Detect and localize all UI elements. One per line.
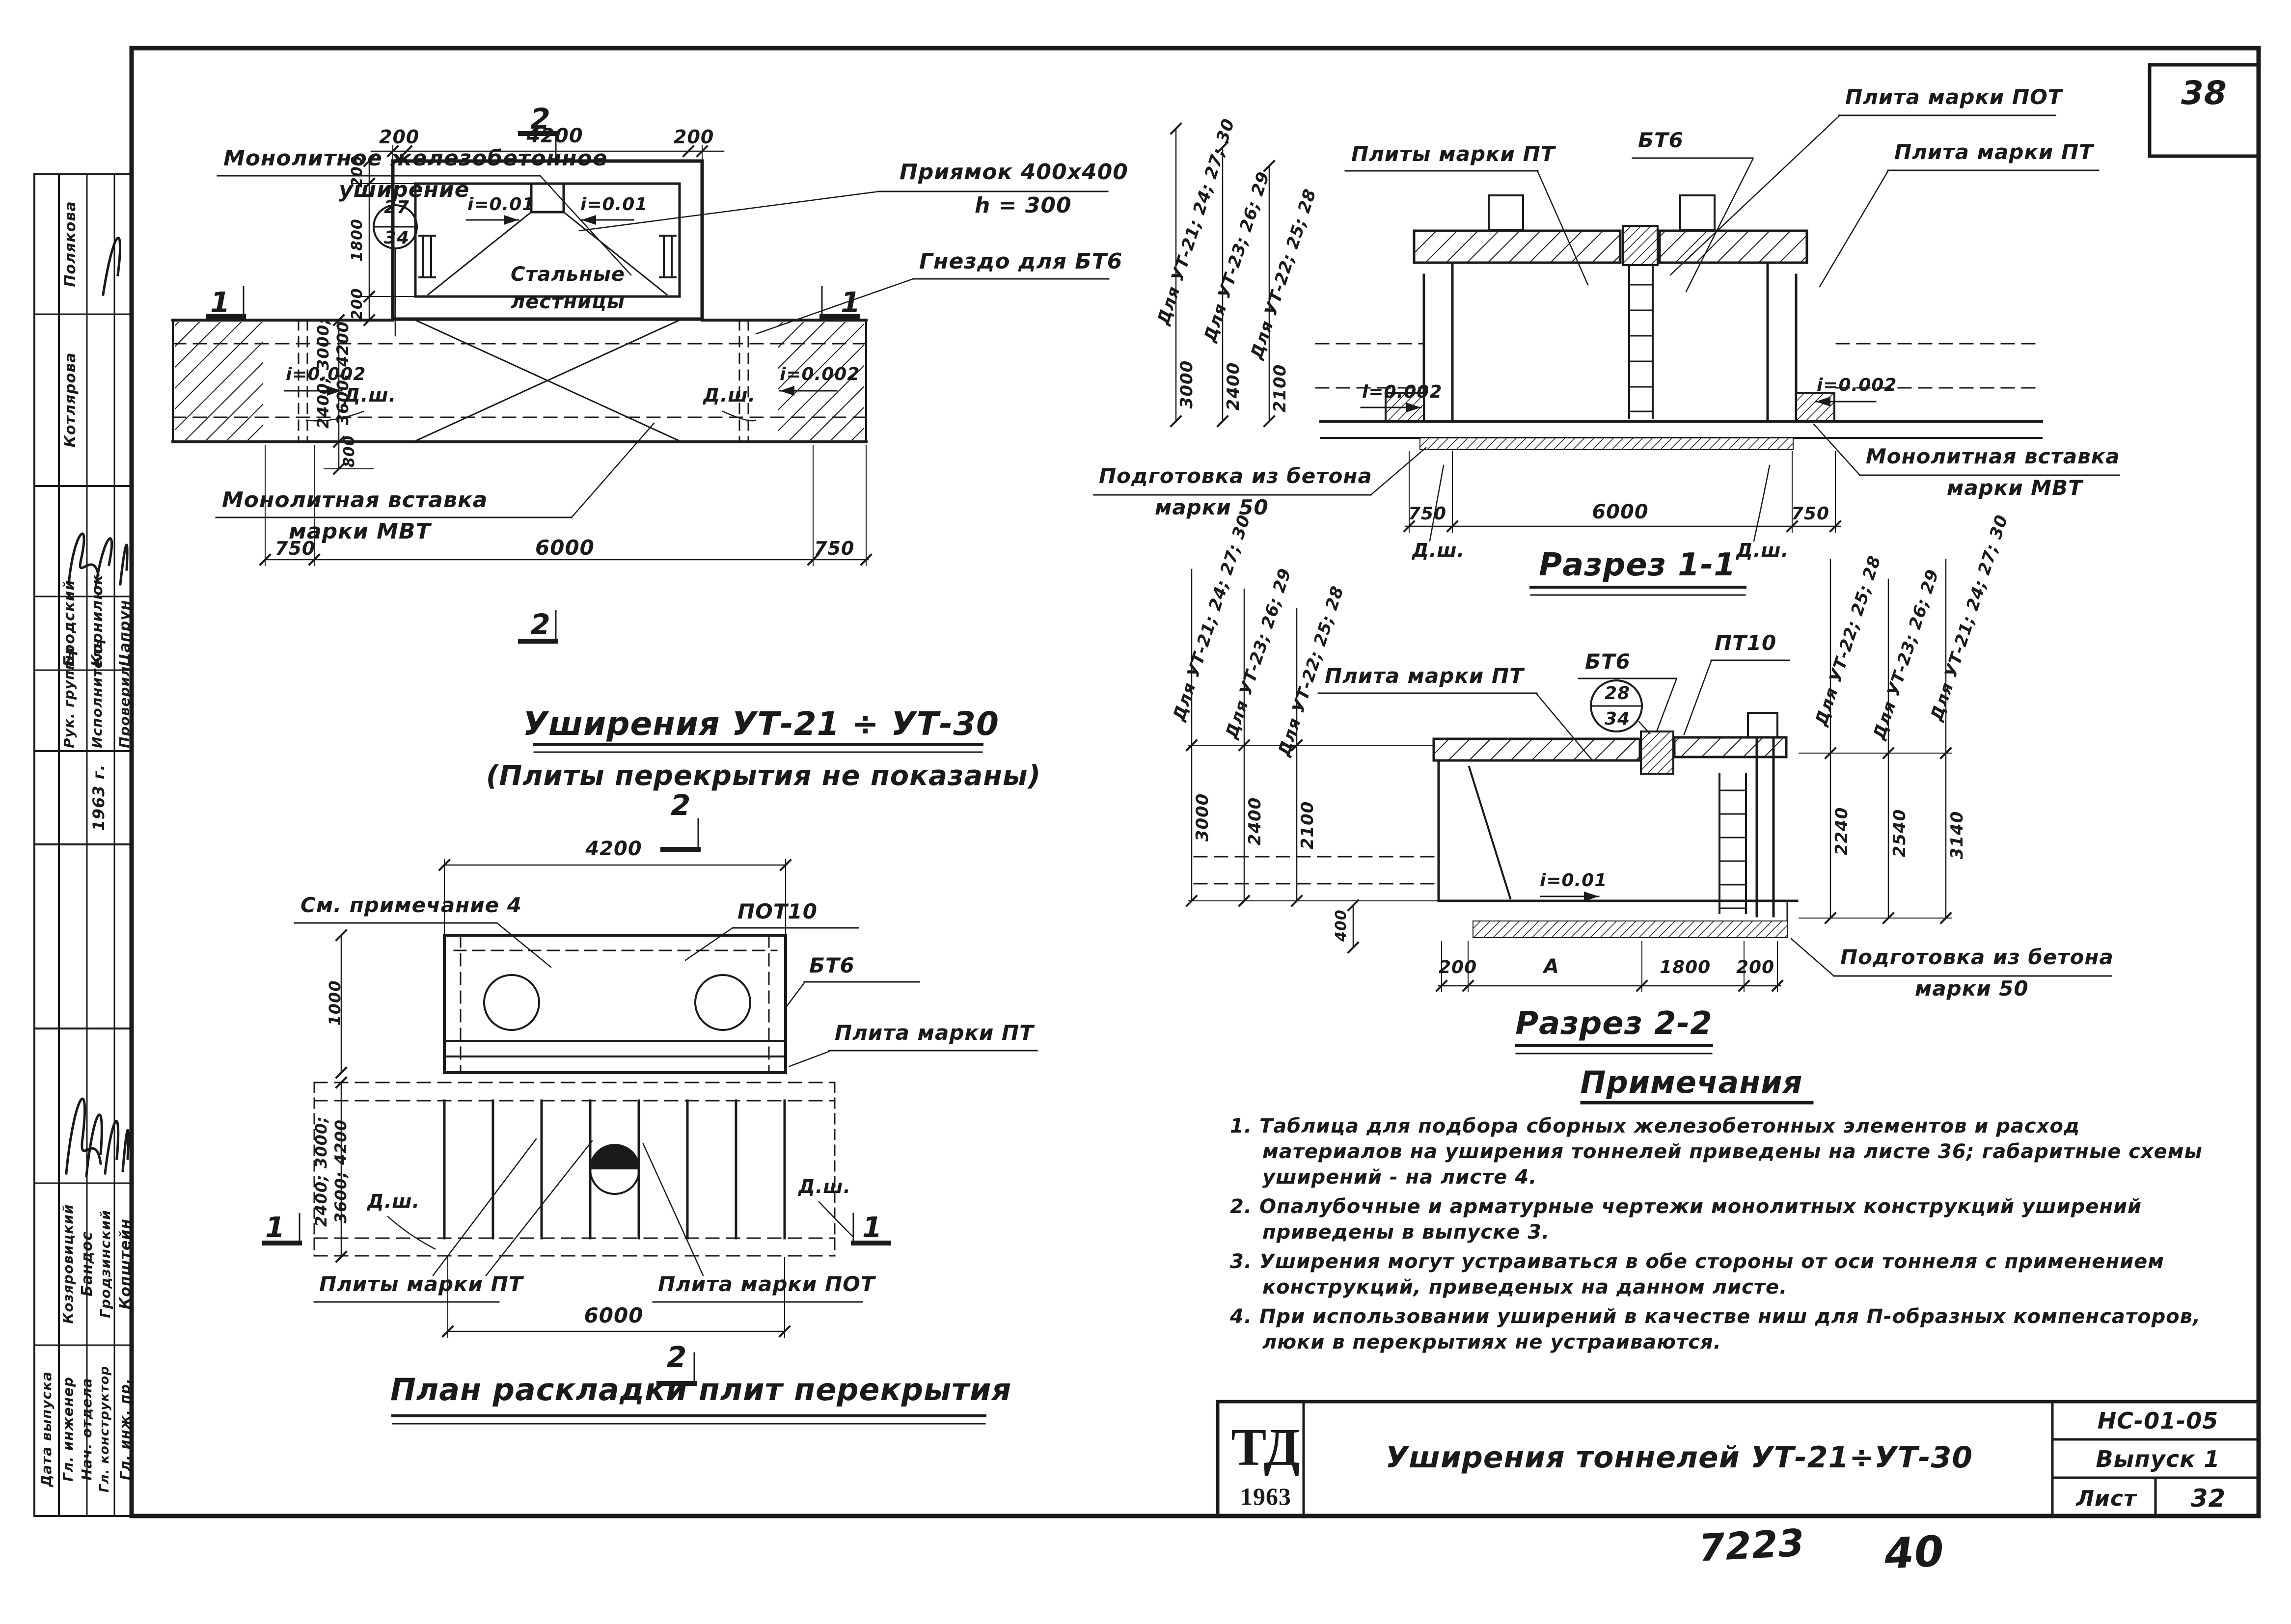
- sidebar-date-label: Дата выпуска: [39, 1349, 54, 1510]
- d2-joint-left: Д.ш.: [367, 1192, 420, 1212]
- d4-slope-001: i=0.01: [1540, 871, 1607, 890]
- titleblock-sheet-label: Лист: [2060, 1488, 2153, 1510]
- d3-label-insert-2: марки МВТ: [1947, 477, 2083, 499]
- sidebar-role-checked: Проверил: [117, 674, 132, 748]
- d4-dim-200-right: 200: [1736, 958, 1766, 977]
- d4-label-pt10: ПТ10: [1715, 632, 1776, 654]
- d1-joint-right: Д.ш.: [703, 386, 756, 406]
- d3-label-plate-pt: Плита марки ПТ: [1894, 141, 2094, 163]
- d2-section-mark-2-top: 2: [671, 790, 691, 820]
- d4-dim-right-2540: 2540: [1891, 757, 1909, 909]
- d1-dim-200-right: 200: [674, 128, 703, 147]
- d3-dim-2100: 2100: [1272, 352, 1289, 425]
- sidebar-role-chief-proj-engineer: Гл. инж. пр.: [118, 1349, 132, 1510]
- d3-title: Разрез 1-1: [1525, 549, 1750, 582]
- d4-marker-34: 34: [1605, 710, 1629, 729]
- d2-dim-range-2: 3600; 4200: [333, 1093, 350, 1250]
- d4-label-plate-pt: Плита марки ПТ: [1325, 665, 1524, 687]
- d1-label-pit-depth: h = 300: [975, 194, 1072, 217]
- d1-slope-001-right: i=0.01: [580, 195, 648, 214]
- sidebar-role-executor: Исполнитель: [90, 674, 104, 748]
- d1-label-ladders-2: лестницы: [511, 292, 589, 312]
- notes-list: 1. Таблица для подбора сборных железобет…: [1230, 1113, 2207, 1359]
- d2-label-bt6: БТ6: [809, 955, 855, 976]
- titleblock-sheet-number: 32: [2160, 1486, 2256, 1512]
- d1-label-widening-1: Монолитное железобетонное: [223, 147, 608, 170]
- d2-section-mark-2-bottom: 2: [667, 1342, 687, 1372]
- d2-dim-1000: 1000: [327, 935, 344, 1071]
- d3-label-bt6: БТ6: [1638, 130, 1684, 151]
- d2-label-plate-pot: Плита марки ПОТ: [658, 1273, 875, 1295]
- d1-dim-left-1800: 1800: [350, 186, 365, 295]
- d4-label-prep-1: Подготовка из бетона: [1840, 947, 2114, 968]
- sidebar-year: 1963 г.: [91, 755, 108, 840]
- d2-dim-6000: 6000: [579, 1305, 648, 1326]
- d4-dim-left-2100: 2100: [1299, 754, 1317, 896]
- d3-dim-6000: 6000: [1586, 502, 1655, 522]
- sidebar-name-bandos: Бандос: [80, 1187, 95, 1341]
- sidebar-name-kozyarovitsky: Козяровицкий: [61, 1187, 75, 1341]
- d4-dim-left-3000: 3000: [1194, 746, 1212, 889]
- d1-dim-left-200b: 200: [350, 295, 365, 320]
- d2-section-mark-1-left: 1: [265, 1213, 285, 1243]
- d4-dim-1800: 1800: [1660, 958, 1704, 977]
- d4-dim-right-3140: 3140: [1949, 759, 1966, 911]
- sidebar-name-top-1: Полякова: [63, 178, 79, 310]
- d4-label-bt6: БТ6: [1585, 651, 1631, 673]
- d1-slope-0002-right: i=0.002: [780, 365, 860, 384]
- d1-marker-27: 27: [384, 198, 407, 217]
- d1-section-mark-2-bottom: 2: [529, 610, 552, 640]
- note-item-2: 2. Опалубочные и арматурные чертежи моно…: [1230, 1194, 2207, 1245]
- d2-label-see-note: См. примечание 4: [300, 894, 522, 916]
- d2-label-pot10: ПОТ10: [737, 901, 818, 922]
- d3-slope-right: i=0.002: [1817, 376, 1897, 395]
- d3-slope-left: i=0.002: [1362, 383, 1442, 402]
- d1-dim-200-left: 200: [379, 128, 409, 147]
- d3-dim-3000: 3000: [1178, 348, 1196, 421]
- d1-dim-800: 800: [342, 442, 357, 467]
- d2-dim-range-1: 2400; 3000;: [313, 1093, 330, 1250]
- d1-marker-34: 34: [384, 229, 407, 247]
- d4-dim-right-2240: 2240: [1833, 755, 1851, 907]
- d1-section-mark-1-right: 1: [841, 288, 861, 318]
- d3-label-prep-1: Подготовка из бетона: [1099, 465, 1372, 487]
- d1-dim-750-right: 750: [814, 539, 853, 559]
- d2-section-mark-1-right: 1: [862, 1213, 882, 1243]
- titleblock-logo: ТД: [1227, 1420, 1305, 1475]
- d1-label-socket: Гнездо для БТ6: [919, 250, 1122, 273]
- d1-slope-001-left: i=0.01: [467, 195, 535, 214]
- d1-label-insert-1: Монолитная вставка: [222, 489, 488, 512]
- d4-dim-a: А: [1542, 956, 1561, 977]
- titleblock-logo-year: 1963: [1227, 1484, 1305, 1510]
- d3-dim-2400: 2400: [1225, 350, 1243, 423]
- d3-label-prep-2: марки 50: [1155, 497, 1269, 518]
- titleblock-code: НС-01-05: [2067, 1409, 2249, 1433]
- footer-code-2: 40: [1883, 1529, 1945, 1577]
- sidebar-role-chief-engineer: Гл. инженер: [61, 1349, 75, 1510]
- sidebar-name-top-2: Котлярова: [63, 318, 79, 482]
- d3-joint-left: Д.ш.: [1412, 541, 1465, 561]
- d4-label-prep-2: марки 50: [1915, 978, 2029, 1000]
- titleblock-issue: Выпуск 1: [2067, 1447, 2249, 1471]
- titleblock-title: Уширения тоннелей УТ-21÷УТ-30: [1326, 1442, 2033, 1473]
- note-item-1: 1. Таблица для подбора сборных железобет…: [1230, 1113, 2207, 1190]
- d1-section-mark-1-left: 1: [210, 288, 230, 318]
- page-number: 38: [2181, 76, 2225, 110]
- d3-dim-750-right: 750: [1788, 505, 1832, 523]
- d4-marker-28: 28: [1605, 684, 1629, 703]
- d1-joint-left: Д.ш.: [344, 386, 396, 406]
- d3-label-insert-1: Монолитная вставка: [1866, 446, 2120, 467]
- d1-section-mark-2-top: 2: [529, 104, 552, 134]
- d1-label-pit: Приямок 400x400: [900, 161, 1128, 184]
- d1-dim-6000: 6000: [535, 537, 594, 559]
- note-item-4: 4. При использовании уширений в качестве…: [1230, 1304, 2207, 1355]
- sidebar-name-tsaprun: Цапрун: [117, 600, 133, 667]
- sidebar-role-chief-designer: Гл. конструктор: [98, 1349, 111, 1510]
- note-item-3: 3. Уширения могут устраиваться в обе сто…: [1230, 1249, 2207, 1300]
- d1-title: Уширения УТ-21 ÷ УТ-30: [486, 707, 1036, 741]
- d1-slope-0002-left: i=0.002: [286, 365, 366, 384]
- d3-dim-750-left: 750: [1405, 505, 1449, 523]
- d1-subtitle: (Плиты перекрытия не показаны): [484, 762, 1043, 791]
- footer-code: 7223: [1698, 1523, 1805, 1568]
- d4-title: Разрез 2-2: [1513, 1007, 1715, 1040]
- blueprint-sheet: 38 7223 40 Полякова Котлярова Бродский К…: [0, 0, 2291, 1624]
- d3-label-plates-pt: Плиты марки ПТ: [1351, 143, 1555, 165]
- d3-label-plate-pot: Плита марки ПОТ: [1845, 86, 2062, 108]
- notes-title: Примечания: [1544, 1066, 1839, 1098]
- d2-label-plates-pt: Плиты марки ПТ: [319, 1273, 523, 1295]
- d1-dim-750-left: 750: [275, 539, 314, 559]
- d2-joint-right: Д.ш.: [798, 1177, 851, 1197]
- d4-dim-400: 400: [1334, 904, 1349, 947]
- d4-dim-200-left: 200: [1439, 958, 1468, 977]
- d2-title: План раскладки плит перекрытия: [390, 1374, 987, 1406]
- d2-label-plate-pt: Плита марки ПТ: [835, 1022, 1034, 1044]
- d2-dim-4200: 4200: [584, 839, 643, 859]
- sidebar-name-grodzinsky: Гродзинский: [98, 1187, 112, 1341]
- sidebar-role-dept-head: Нач. отдела: [80, 1349, 94, 1510]
- sidebar-name-kopshtein: Копштейн: [118, 1187, 134, 1341]
- d1-label-ladders-1: Стальные: [511, 264, 589, 285]
- d1-dim-left-200a: 200: [350, 162, 365, 188]
- sidebar-role-group-leader: Рук. группы: [62, 674, 76, 748]
- d4-dim-left-2400: 2400: [1247, 750, 1264, 893]
